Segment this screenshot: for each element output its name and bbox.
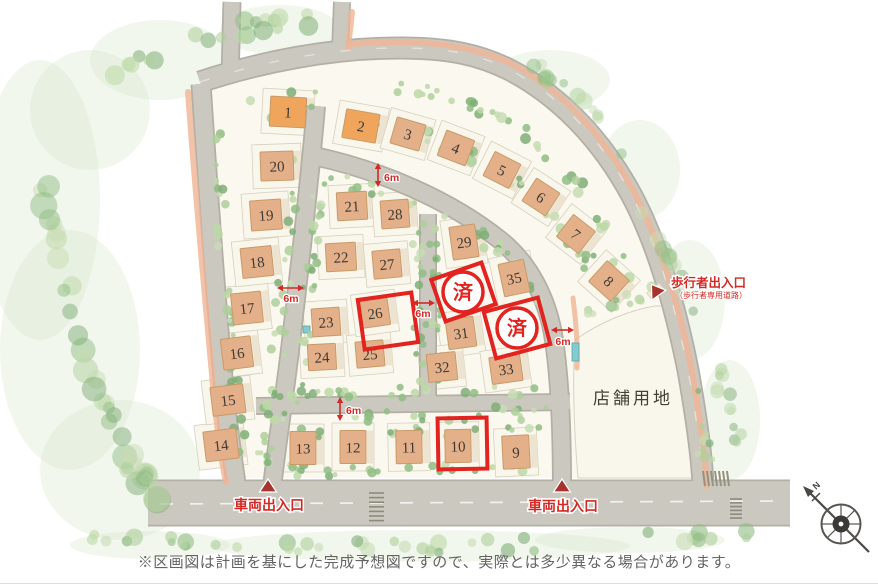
bush [435,328,440,333]
bush [723,387,737,401]
bush [461,388,471,398]
bush [212,223,221,232]
lot-2: 2 [342,109,381,143]
bush [426,241,433,248]
bush [297,336,304,343]
bush [509,427,515,433]
lot-21: 21 [336,191,367,221]
lot-number: 33 [498,362,515,380]
bush [410,412,417,419]
bush [519,181,524,186]
bush [691,533,706,548]
lot-17: 17 [230,291,263,325]
bush [136,469,153,486]
bush [344,174,350,180]
compass-icon: N [803,480,869,552]
lot-number: 24 [314,350,330,367]
bush [113,427,132,446]
bush [211,540,221,550]
bush [491,402,501,412]
bush [635,206,648,219]
bush [57,284,70,297]
bush [201,33,216,48]
bush [525,424,534,433]
bush [289,196,296,203]
sidewalk [348,12,352,48]
bush [616,148,627,159]
bush [470,99,478,107]
bush [368,190,376,198]
bush [123,56,139,72]
lot-number: 1 [284,105,292,121]
bush [82,377,107,402]
lot-23: 23 [311,307,341,337]
sold-label: 済 [507,316,528,340]
bush [575,92,592,109]
lot-20: 20 [260,151,294,181]
bush [282,257,288,263]
bush [490,109,496,115]
bush [314,236,322,244]
bush [415,281,423,289]
bush [735,428,747,440]
bush [480,230,489,239]
bush [297,387,306,396]
lot-9: 9 [502,435,531,469]
bush [316,200,326,210]
bush [676,533,693,550]
bush [282,329,289,336]
bush [404,463,413,472]
lot-number: 23 [318,315,334,332]
bush [335,387,342,394]
lot-29: 29 [449,224,479,260]
bush [591,253,597,259]
dimension-label: 6m [415,308,430,320]
bush [315,213,322,220]
bush [419,243,425,249]
lot-25: 25 [355,340,385,368]
bush [704,532,718,546]
bush [505,250,511,256]
bush [312,283,318,289]
bush [374,468,380,474]
lot-33: 33 [489,353,523,384]
lot-number: 10 [450,439,465,455]
bush [165,531,177,543]
bush [214,242,222,250]
bush [344,392,353,401]
lot-32: 32 [426,352,458,383]
sold-label: 済 [453,280,474,304]
bush [422,321,429,328]
bush [418,269,426,277]
bush [479,243,488,252]
bush [715,371,724,380]
bush [222,305,232,315]
bush [262,400,272,410]
road [340,2,342,54]
bush [398,394,406,402]
lot-12: 12 [340,431,366,464]
bush [592,112,604,124]
bush [520,133,531,144]
lot-number: 15 [220,393,237,411]
bush [62,304,78,320]
bush [288,392,297,401]
bush [68,325,88,345]
bush [216,32,227,43]
bush [315,389,320,394]
bush [689,306,698,315]
bush [290,191,295,196]
lot-number: 22 [333,250,349,267]
dimension-label: 6m [283,293,298,305]
bush [236,414,246,424]
bush [273,14,286,27]
bush [232,377,237,382]
bush [581,251,590,260]
bush [324,388,334,398]
bush [316,427,325,436]
bush [526,59,541,74]
bush [695,388,701,394]
lot-27: 27 [372,249,402,279]
bush [235,29,250,44]
bush [622,290,631,299]
lot-1: 1 [269,96,307,128]
bush [293,472,301,480]
bush [710,381,724,395]
bush [433,256,438,261]
lot-number: 19 [258,208,274,225]
bush [489,464,495,470]
bush [729,423,738,432]
bush [543,405,548,410]
bush [665,258,678,271]
dimension-label: 6m [555,336,570,348]
bush [309,221,319,231]
bush [213,162,218,167]
bush [522,124,530,132]
bush [299,16,319,36]
lot-number: 12 [346,441,361,457]
bush [291,205,300,214]
lot-18: 18 [240,245,274,278]
bush [387,429,394,436]
bush [284,246,294,256]
lot-number: 31 [453,326,470,344]
bush [389,537,399,547]
bush [178,540,187,549]
lot-19: 19 [249,199,282,231]
lot-13: 13 [290,432,316,465]
bush [418,264,424,270]
bush [388,392,395,399]
bush [411,389,420,398]
lot-number: 17 [239,301,256,319]
lot-22: 22 [325,242,356,272]
bush [384,408,390,414]
bush [409,240,417,248]
lot-26: 26 [359,298,390,329]
bush [254,21,273,40]
utility-box [572,343,579,361]
bush [351,535,363,547]
bush [300,537,314,551]
lot-number: 21 [344,199,360,216]
bush [508,389,518,399]
bush [106,407,122,423]
bush [580,264,588,272]
bush [126,529,143,546]
bush [310,194,315,199]
bush [541,154,549,162]
store-site-label: 店舗用地 [593,389,673,408]
bush [213,178,219,184]
bush [284,216,294,226]
bush [105,65,125,85]
bush [425,84,430,89]
lot-number: 13 [296,442,311,458]
bush [533,141,541,149]
bush [264,459,272,467]
bush [289,228,296,235]
bush [699,423,705,429]
bush [332,472,337,477]
bush [239,15,249,25]
bush [397,384,404,391]
bush [477,107,484,114]
bush [434,88,440,94]
lot-number: 32 [434,360,451,377]
pedestrian-entrance-label: 歩行者出入口 [671,275,746,290]
bush [530,384,538,392]
bush [368,180,376,188]
bush [378,190,384,196]
bush [324,466,332,474]
bush [268,445,275,452]
bush [724,403,736,415]
lot-11: 11 [396,430,423,463]
bush [267,344,276,353]
bush [413,351,419,357]
bush [621,253,627,259]
bush [471,425,479,433]
bush [308,266,315,273]
bush [143,485,170,512]
bush [282,352,287,357]
bush [441,213,448,220]
bush [300,382,305,387]
bush [271,330,278,337]
lot-number: 29 [456,235,473,253]
lot-number: 14 [213,438,230,456]
bush [414,89,423,98]
lot-10: 10 [445,429,472,462]
road [256,402,570,406]
bush [496,112,507,123]
bush [421,384,429,392]
bush [430,225,438,233]
bush [705,439,713,447]
bush [212,135,221,144]
bush [511,407,520,416]
bush [600,222,609,231]
bush [493,247,503,257]
bush [271,298,280,307]
bottom-divider [0,583,878,584]
bush [430,269,436,275]
bush [550,212,559,221]
bush [311,253,318,260]
site-plan-map: 1234567891011121314151617181920212223242… [0,0,878,585]
compass-north-label: N [811,480,823,492]
bush [419,417,425,423]
bush [416,248,425,257]
bush [260,432,268,440]
bush [742,533,751,542]
bush [398,81,404,87]
bush [47,247,69,269]
dimension-label: 6m [346,405,361,417]
bush [287,280,293,286]
lot-28: 28 [380,199,410,229]
bush [433,241,440,248]
bush [221,200,230,209]
bush [517,416,525,424]
bush [562,175,572,185]
bush [350,464,356,470]
vehicle-entrance-label: 車両出入口 [528,498,598,514]
bush [559,79,568,88]
bush [538,71,551,84]
bush [231,333,236,338]
bush [240,430,250,440]
lot-24: 24 [307,343,336,370]
bush [87,534,98,545]
bush [468,538,477,547]
bush [584,310,592,318]
bush [643,527,654,538]
bush [316,434,322,440]
lot-number: 16 [229,346,246,364]
road [230,2,232,80]
bush [428,462,436,470]
bush [470,389,479,398]
site-plan-svg: 1234567891011121314151617181920212223242… [0,0,878,585]
bush [420,341,427,348]
bush [271,392,277,398]
bush [638,298,645,305]
compass-hub-center [839,522,844,527]
lot-14: 14 [203,428,239,462]
bush [571,176,580,185]
bush [313,89,318,94]
bush [419,360,427,368]
bush [481,533,494,546]
bush [518,532,530,544]
bush [593,215,601,223]
bush [573,187,584,198]
lot-16: 16 [220,336,254,370]
bush [295,400,300,405]
bush [263,452,270,459]
bush [227,318,232,323]
lot-number: 27 [379,257,396,274]
bush [448,97,455,104]
bush [531,407,537,413]
bush [286,87,296,97]
bush [420,220,428,228]
bush [223,291,230,298]
dimension-label: 6m [384,172,399,184]
bush [282,411,288,417]
pedestrian-entrance-sublabel: （歩行者専用道路） [675,290,747,300]
vehicle-entrance-label: 車両出入口 [234,497,304,513]
bush [246,96,255,105]
bush [428,93,435,100]
bush [276,393,283,400]
lot-number: 26 [367,305,385,323]
bush [101,536,112,547]
bush [218,185,227,194]
bush [37,175,60,198]
bush [328,175,334,181]
bush [280,416,285,421]
bush [612,304,619,311]
lot-number: 18 [249,255,266,272]
bush [536,424,543,431]
bush [627,301,634,308]
bush [516,175,522,181]
bush [308,104,314,110]
bush [77,348,92,363]
lot-number: 9 [512,445,520,461]
bush [143,55,154,66]
bush [364,411,374,421]
bush [699,451,710,462]
bush [425,138,431,144]
disclaimer-note: ※区画図は計画を基にした完成予想図ですので、実際とは多少異なる場合があります。 [0,551,878,572]
bush [416,230,422,236]
bush [264,410,273,419]
bush [492,384,498,390]
bush [258,450,263,455]
lot-number: 11 [402,440,417,456]
bush [394,88,402,96]
lot-15: 15 [210,384,246,417]
bush [274,279,282,287]
bush [280,306,289,315]
lot-number: 28 [387,207,403,224]
lot-number: 20 [269,159,285,176]
bush [322,181,328,187]
